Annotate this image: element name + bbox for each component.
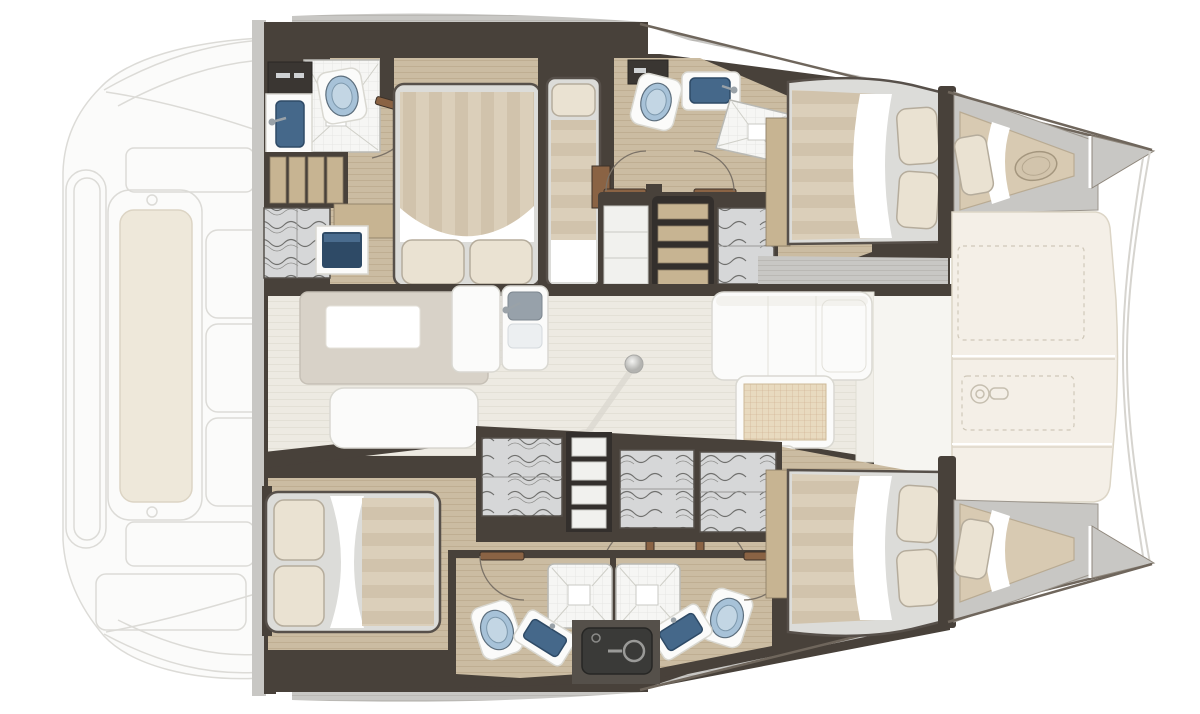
shelf: [572, 486, 606, 504]
port-coachroof-band: [264, 22, 648, 58]
inner-walkway: [758, 256, 948, 288]
table-top-rattan: [744, 384, 826, 440]
shower-drain: [568, 585, 590, 605]
sofa-backrest: [716, 296, 868, 306]
table-leg: [625, 355, 643, 373]
stbd-wardrobe-row: [476, 426, 782, 542]
forestay-line: [1127, 151, 1150, 563]
shower-drain: [748, 124, 766, 140]
floor-plan-page: [0, 0, 1200, 714]
shower-drain: [636, 585, 658, 605]
single-bed-sheet: [551, 240, 596, 282]
pillow: [552, 84, 595, 116]
stair-tread: [270, 157, 286, 203]
shelf: [572, 510, 606, 528]
pillow: [896, 485, 940, 544]
island-unit: [452, 286, 500, 372]
stbd-forward-cabin: [766, 470, 944, 636]
stair-tread: [658, 270, 708, 285]
shelf: [572, 438, 606, 456]
stair-tread: [658, 226, 708, 241]
aft-deck-ghost: [63, 38, 264, 679]
pillow: [896, 107, 940, 166]
single-bed-duvet: [551, 120, 596, 240]
pillow: [896, 171, 940, 230]
washbasin: [276, 101, 304, 147]
shelf-unit: [604, 206, 648, 284]
bed-duvet: [400, 92, 534, 238]
stair-tread: [289, 157, 305, 203]
catamaran-floor-plan: [0, 0, 1200, 714]
bedside-floor: [766, 470, 790, 598]
pillow: [274, 566, 324, 626]
tv-screen-glare: [324, 234, 360, 242]
pillow: [402, 240, 464, 284]
sink-basin-2: [508, 324, 542, 348]
counter-inset: [326, 306, 420, 348]
cabinet-handle: [634, 68, 646, 73]
pillow: [274, 500, 324, 560]
stair-tread: [658, 204, 708, 219]
cabinet-handle: [276, 73, 290, 78]
bedside-floor: [766, 118, 790, 246]
port-aft-cabin-bed: [394, 84, 540, 286]
port-companionway-block: [598, 192, 778, 288]
forestay-line-2: [1123, 158, 1143, 556]
pillow: [470, 240, 532, 284]
stair-tread: [308, 157, 324, 203]
door-frame: [380, 56, 394, 104]
cockpit-bench-cushion: [120, 210, 192, 502]
pillow: [896, 549, 940, 608]
shelf: [572, 462, 606, 480]
stair-tread: [658, 248, 708, 263]
toilet: [316, 67, 368, 126]
collision-bulkhead: [938, 456, 956, 628]
washbasin: [690, 78, 730, 103]
stair-tread: [327, 157, 343, 203]
bed-duvet: [362, 498, 434, 626]
cabinet-handle: [294, 73, 304, 78]
galley-bench: [330, 388, 478, 448]
door-leaf: [480, 552, 524, 560]
